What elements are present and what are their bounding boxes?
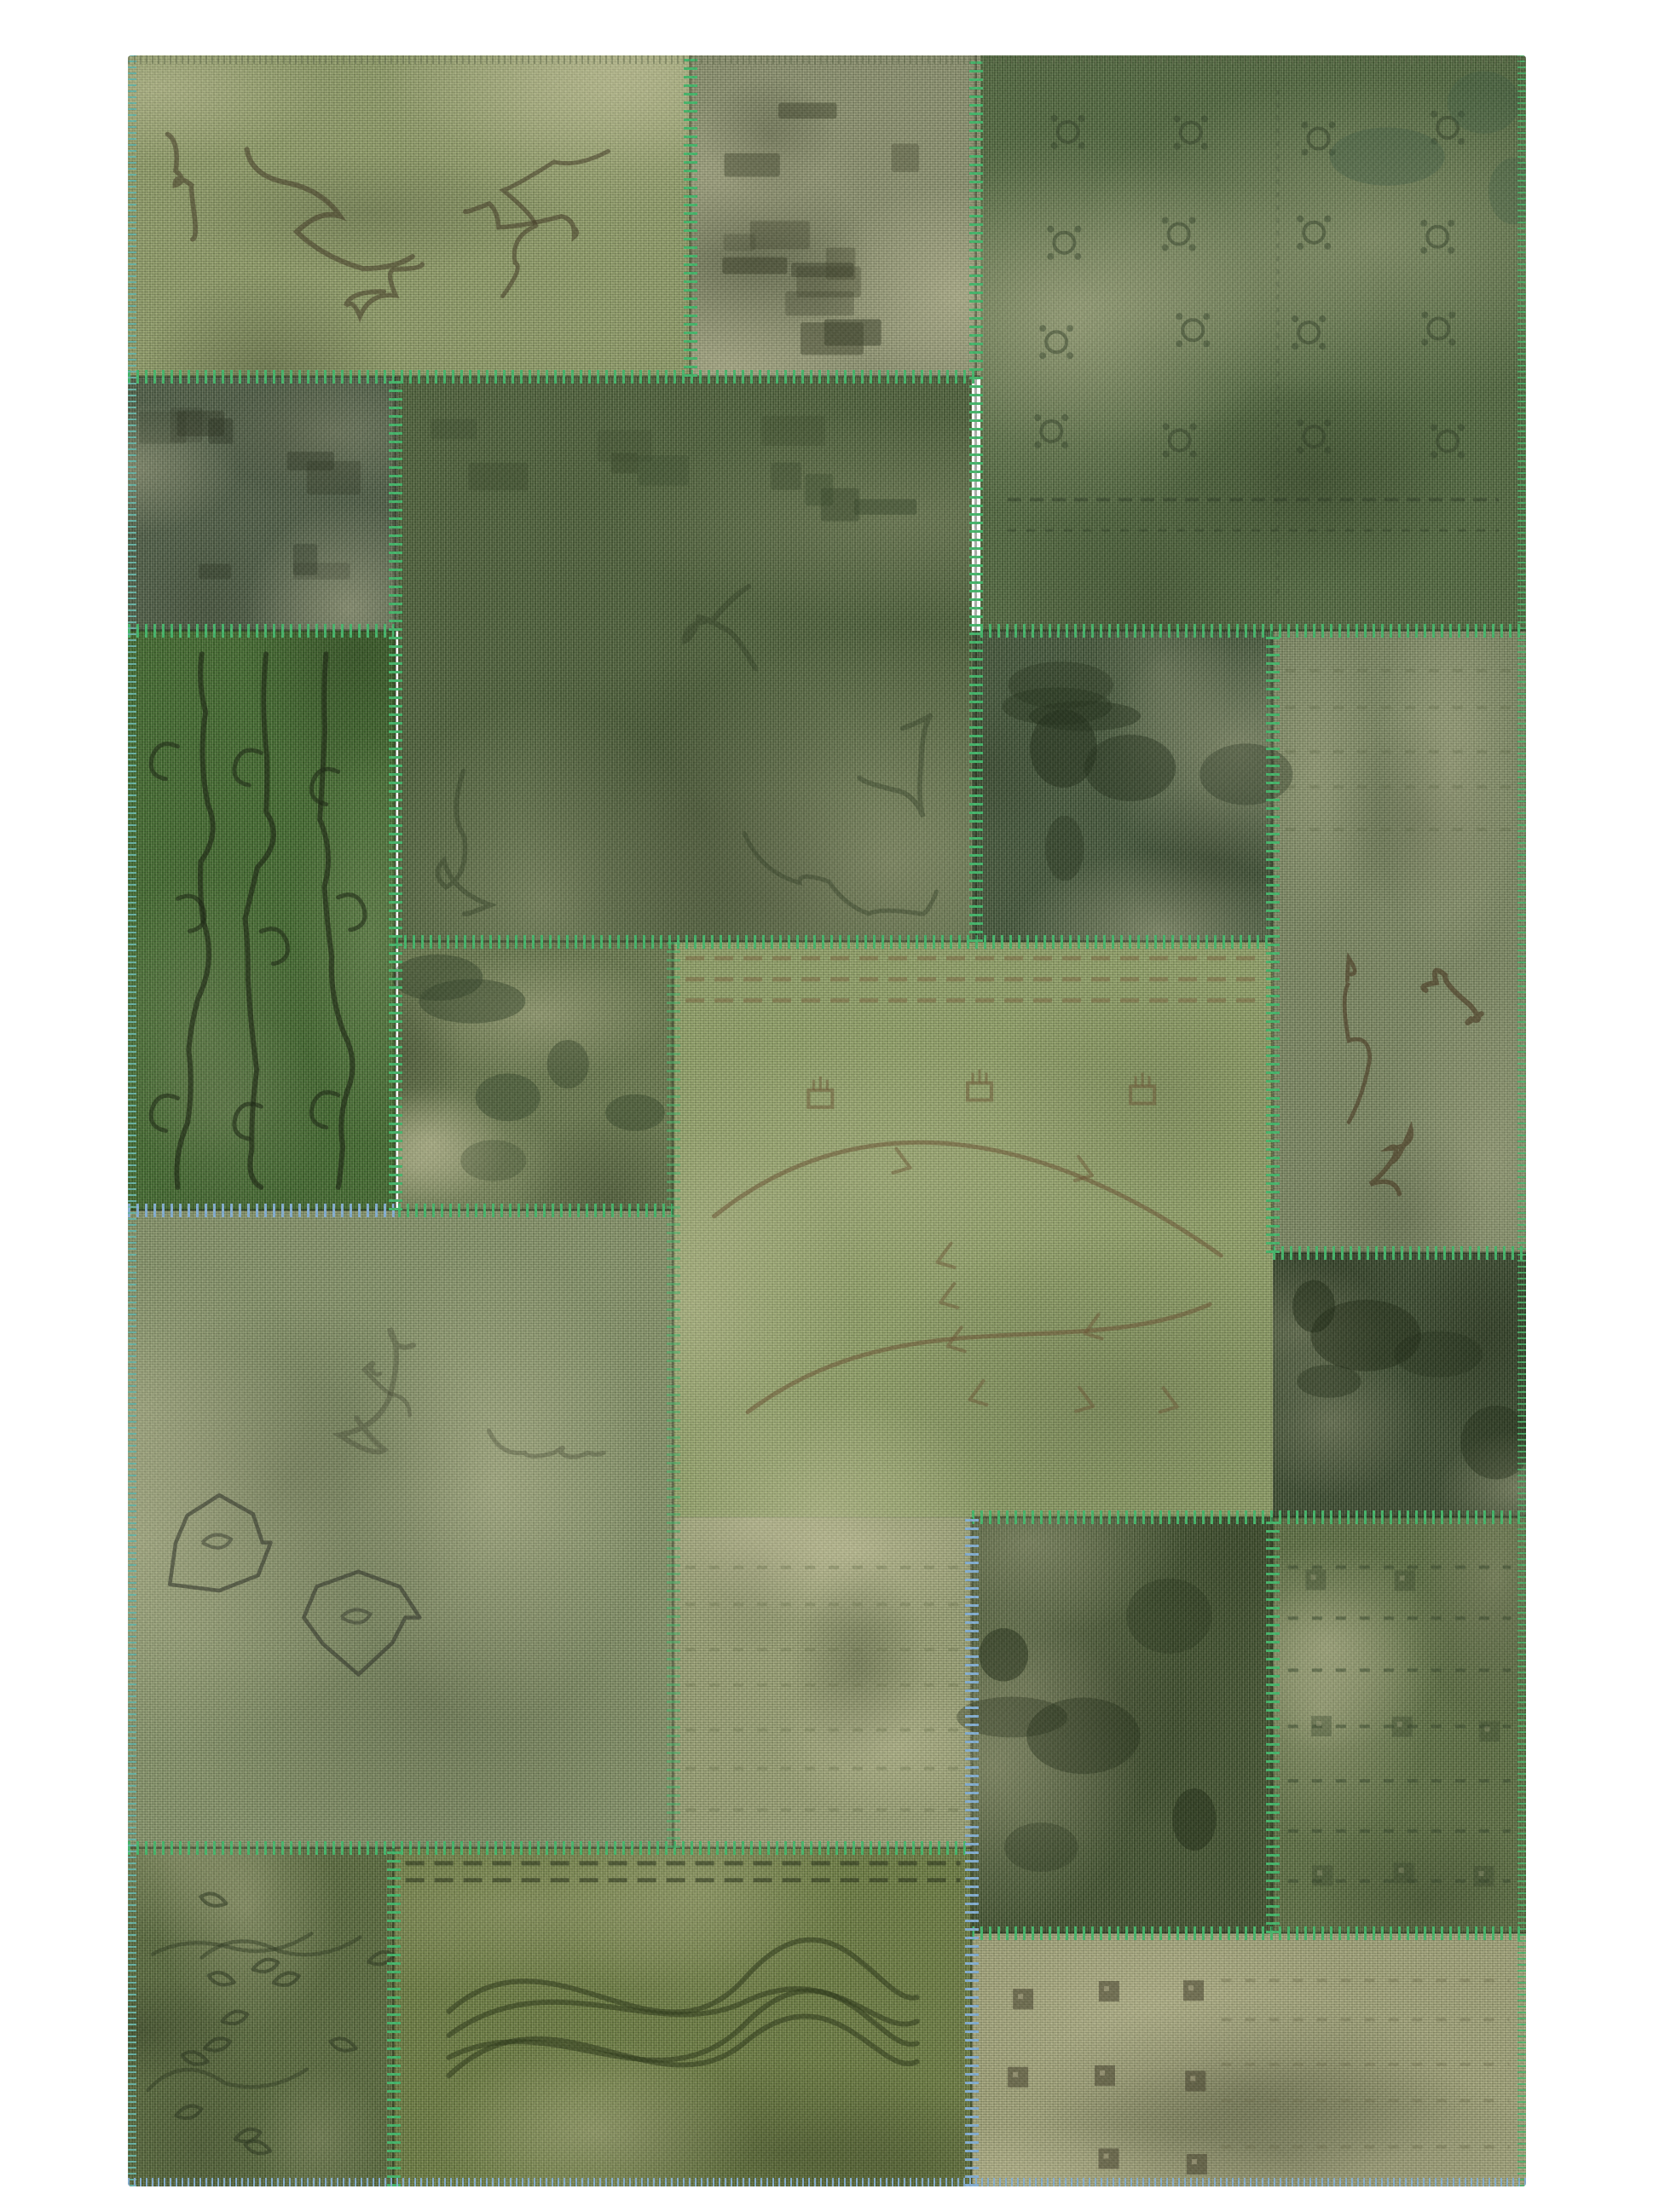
motif-layer <box>128 55 1526 2186</box>
patchwork-rug <box>128 55 1526 2186</box>
white-backdrop <box>0 0 1659 2212</box>
